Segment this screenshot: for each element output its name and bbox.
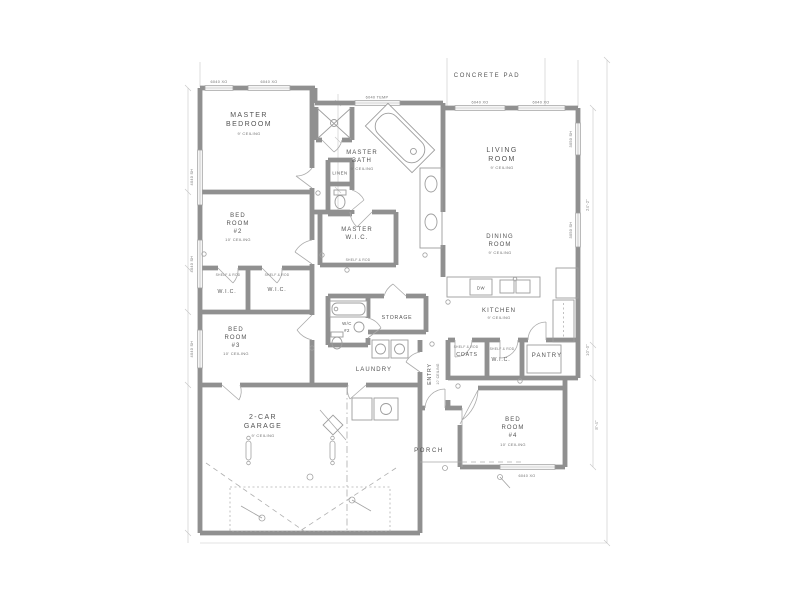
room-label-master-bedroom-2: BEDROOM <box>226 121 272 128</box>
room-label-pantry: PANTRY <box>532 353 562 359</box>
scanned-floor-plan-page: CONCRETE PAD MASTER BEDROOM 9' CEILING M… <box>0 0 800 600</box>
window-label-6: 6040 XO <box>518 474 535 478</box>
room-label-bed3-2: ROOM <box>224 335 247 341</box>
ceiling-note-bed4: 10' CEILING <box>500 442 526 447</box>
room-label-laundry: LAUNDRY <box>356 367 392 373</box>
room-label-storage: STORAGE <box>382 315 413 321</box>
master-shower <box>317 108 351 139</box>
ceiling-note-master-bath: 9' CEILING <box>350 166 373 171</box>
dishwasher-label: DW <box>477 286 486 291</box>
room-label-dining-2: ROOM <box>488 242 511 248</box>
room-label-garage: 2-CAR <box>249 414 277 421</box>
ceiling-note-bed2: 10' CEILING <box>225 237 251 242</box>
room-label-master-bedroom: MASTER <box>230 112 268 119</box>
ceiling-note-dining: 9' CEILING <box>488 250 511 255</box>
room-label-bed2-3: #2 <box>234 229 243 235</box>
doors <box>218 140 546 424</box>
window-label-3: 6040 TEMP <box>366 96 389 100</box>
room-label-bed2-2: ROOM <box>226 221 249 227</box>
room-label-bed3-3: #3 <box>232 343 241 349</box>
pantry-shelving <box>527 345 561 373</box>
room-label-bed4: BED <box>505 417 521 423</box>
room-label-master-wic-2: W.I.C. <box>346 235 369 241</box>
room-label-bed2: BED <box>230 213 246 219</box>
room-label-bed3: BED <box>228 327 244 333</box>
window-label-4: 6040 XO <box>471 101 488 105</box>
window-label-5: 6040 XO <box>532 101 549 105</box>
room-label-dining: DINING <box>486 234 514 240</box>
room-label-wc2-2: #2 <box>344 328 350 333</box>
room-label-linen: LINEN <box>332 171 347 176</box>
room-label-master-wic: MASTER <box>341 227 373 233</box>
window-label-10: 3050 SH <box>569 131 573 148</box>
note-shelf-rod-master-wic: SHELF & ROD <box>346 258 371 262</box>
room-label-master-bath: MASTER <box>346 150 378 156</box>
room-label-wic-hall: W.I.C. <box>492 357 511 363</box>
ceiling-note-living: 9' CEILING <box>490 165 513 170</box>
ceiling-note-bed3: 10' CEILING <box>223 351 249 356</box>
master-tub <box>365 103 434 172</box>
room-label-garage-2: GARAGE <box>244 423 282 430</box>
window-label-9: 4040 SH <box>190 341 194 358</box>
garage-symbols <box>206 388 396 531</box>
concrete-pad-edges <box>447 58 545 106</box>
dimension-text-2: 10'-0" <box>585 344 590 356</box>
master-toilet <box>334 190 346 209</box>
room-label-wic-a: W.I.C. <box>218 289 237 295</box>
ceiling-note-master-bedroom: 9' CEILING <box>237 131 260 136</box>
kitchen-island <box>447 277 540 297</box>
master-vanity <box>420 168 442 248</box>
refrigerator <box>553 268 578 342</box>
room-label-wic-b: W.I.C. <box>268 287 287 293</box>
bath2-tub <box>330 301 367 317</box>
note-shelf-rod-wic-a: SHELF & ROD <box>216 273 241 277</box>
window-label-1: 6040 XO <box>210 80 227 84</box>
dimension-text-3: 8'-4" <box>594 420 599 430</box>
room-label-entry: ENTRY <box>427 363 433 385</box>
room-label-coats: COATS <box>456 352 477 358</box>
laundry-appliances <box>372 340 408 358</box>
room-label-bed4-3: #4 <box>509 433 518 439</box>
window-label-2: 6040 XO <box>260 80 277 84</box>
window-label-8: 4040 SH <box>190 256 194 273</box>
note-shelf-rod-wic-hall: SHELF & ROD <box>490 347 515 351</box>
room-label-wc2: W/C <box>342 321 352 326</box>
room-label-kitchen: KITCHEN <box>482 308 516 314</box>
window-label-7: 4040 SH <box>190 169 194 186</box>
concrete-pad-label: CONCRETE PAD <box>454 73 520 79</box>
window-label-11: 3050 SH <box>569 222 573 239</box>
floor-plan-drawing: CONCRETE PAD MASTER BEDROOM 9' CEILING M… <box>0 0 800 600</box>
room-label-porch: PORCH <box>414 448 444 454</box>
ceiling-note-kitchen: 9' CEILING <box>487 315 510 320</box>
room-label-master-bath-2: BATH <box>352 158 372 164</box>
note-shelf-rod-coats: SHELF & ROD <box>454 345 479 349</box>
room-label-bed4-2: ROOM <box>501 425 524 431</box>
room-label-living-2: ROOM <box>488 156 515 163</box>
dimension-text-1: 24'-2" <box>585 199 590 211</box>
note-shelf-rod-wic-b: SHELF & ROD <box>265 273 290 277</box>
ceiling-note-garage: 9' CEILING <box>251 433 274 438</box>
ceiling-note-entry: 10' CEILING <box>436 363 440 384</box>
room-label-living: LIVING <box>486 147 517 154</box>
mech-water-heater <box>320 398 398 440</box>
